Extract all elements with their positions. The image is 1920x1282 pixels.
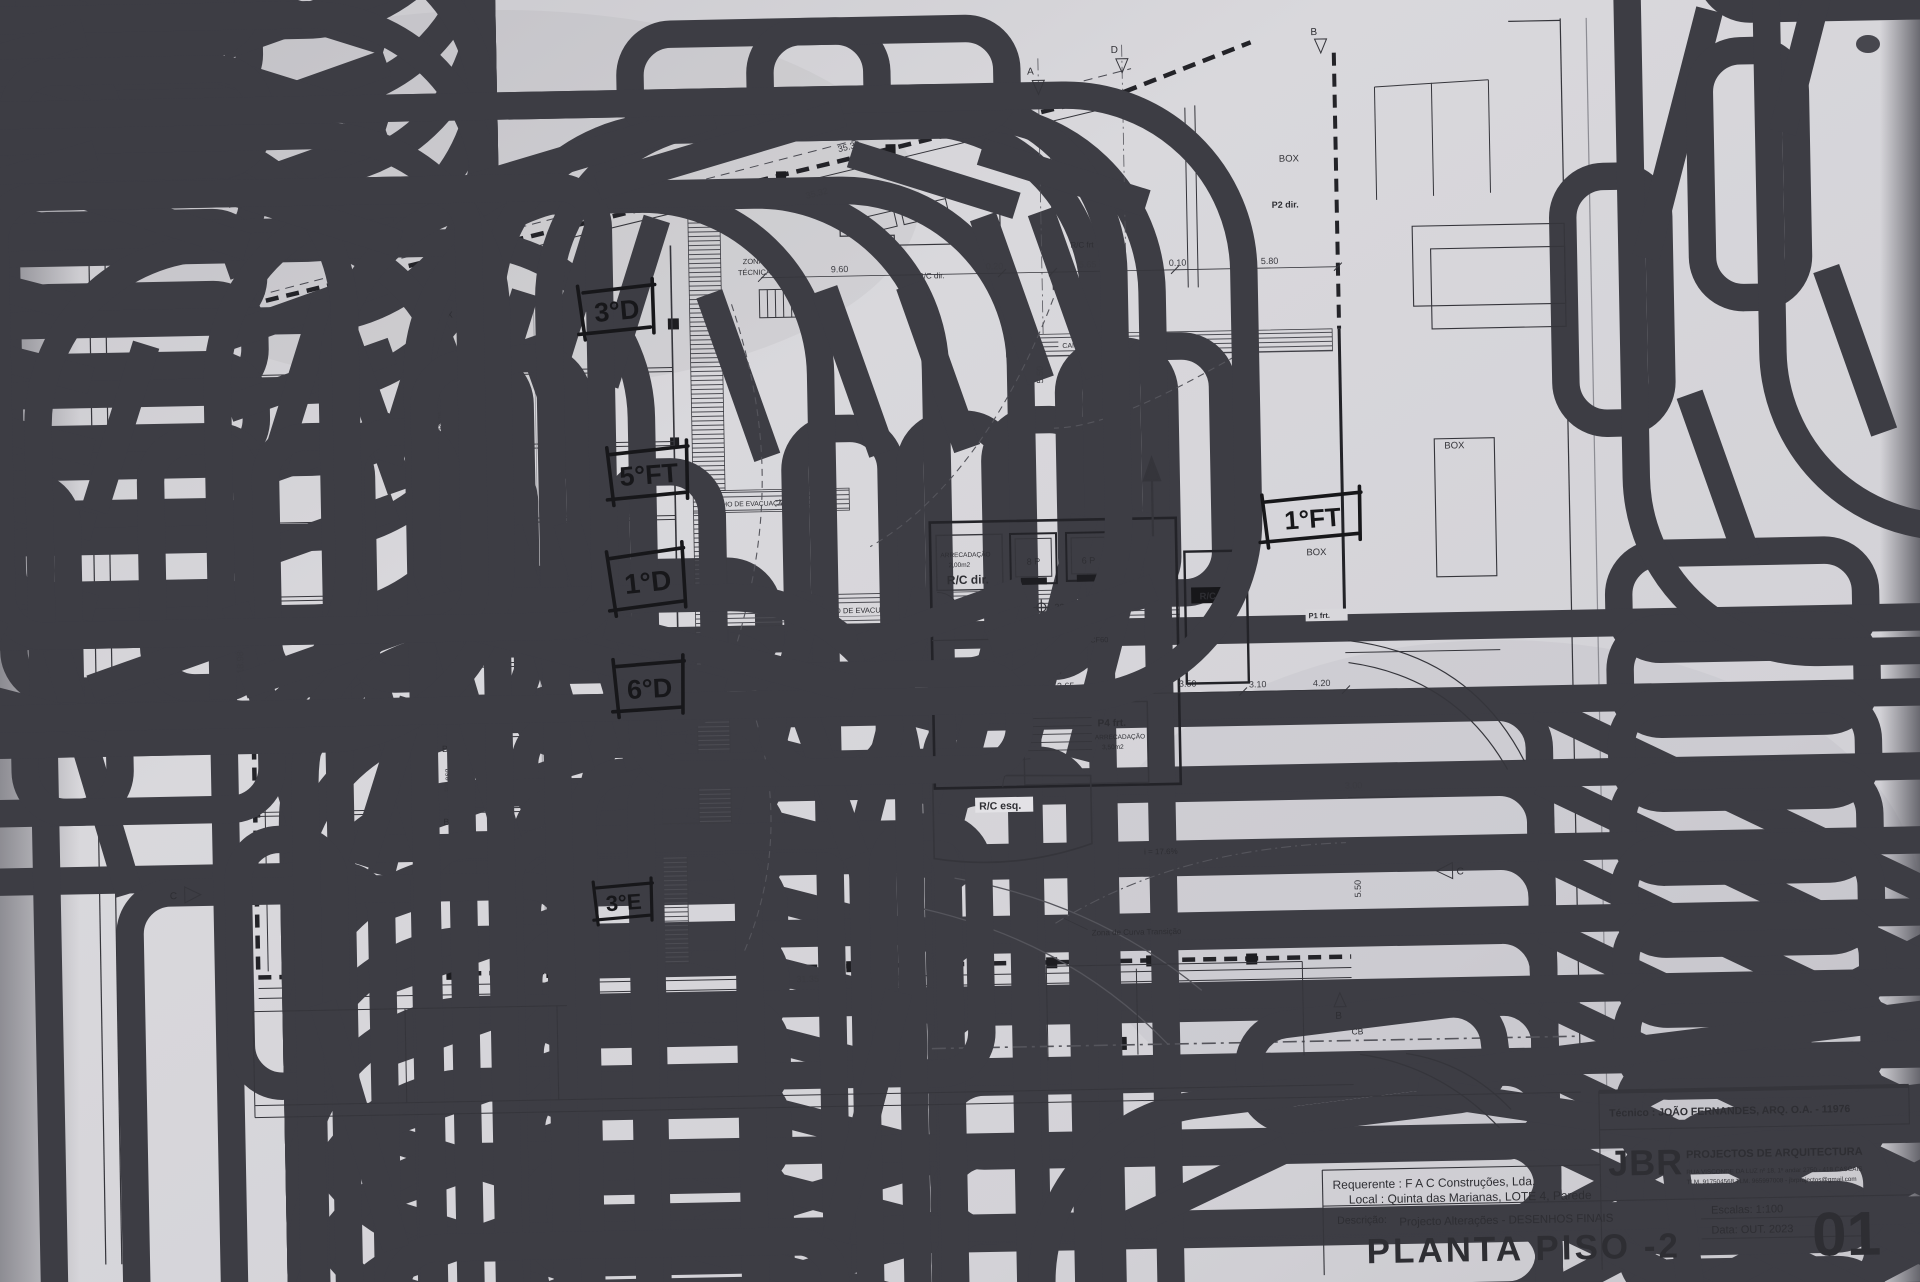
dim-9-60: 9.60 [831, 264, 849, 274]
dim-4-20: 4.20 [1313, 678, 1331, 688]
transition-curve-label: Zona de Curva Transição [1092, 927, 1183, 938]
box-label: BOX [1444, 440, 1465, 451]
dim-5-65: 5.65 [1079, 259, 1097, 269]
rc-frt-label: R/C frt [1070, 240, 1094, 249]
p1-frt-label: P1 frt. [1309, 611, 1330, 620]
storage-area-label: 3,50m2 [1102, 744, 1124, 751]
dim-31-35: 31.35 [796, 974, 819, 984]
section-marker-d: D [1111, 45, 1118, 56]
photographed-drawing-sheet: BOX P3 dir. BOX P6 frt. BOX P1 frt. BOX … [0, 0, 1920, 1282]
box-label: BOX [1279, 153, 1300, 164]
floor-plan-svg: BOX P3 dir. BOX P6 frt. BOX P1 frt. BOX … [0, 0, 1920, 1282]
dim-3-00: 3.00 [1345, 780, 1363, 790]
box-label: BOX [1306, 547, 1327, 558]
dim-3-10: 3.10 [1249, 679, 1267, 689]
sheet-number: 01 [1811, 1199, 1881, 1269]
data-row: Data: OUT. 2023 [1711, 1223, 1793, 1237]
lift-6p-label: 6 P [1082, 555, 1096, 565]
dim-5-50b: 5.50 [1353, 880, 1363, 898]
dim-18-98: 18.98 [235, 651, 245, 674]
rc-esq-label: R/C esq. [979, 800, 1021, 813]
dim-0-10: 0.10 [1169, 258, 1187, 268]
handwritten-5ft: 5°FT [618, 458, 679, 492]
section-marker-a: A [1027, 66, 1034, 77]
handwritten-3e: 3°E [605, 889, 642, 916]
rc-dir-label: R/C dir. [947, 572, 989, 587]
section-marker-b2: B [1335, 1011, 1342, 1022]
handwritten-1ft: 1°FT [1283, 502, 1342, 536]
handwritten-1d: 1°D [623, 564, 673, 600]
dim-0-20: 0.20 [986, 261, 1004, 271]
punch-hole [1856, 35, 1880, 53]
section-marker-c2: C [1456, 866, 1463, 877]
escalas-row: Escalas: 1:100 [1711, 1203, 1783, 1216]
p4-frt-label: P4 frt. [1098, 718, 1127, 730]
descricao-label: Descrição: [1337, 1214, 1387, 1227]
section-marker-cb: CB [1351, 1026, 1363, 1036]
zona-tecnica-label-2: TÉCNICA [738, 268, 771, 278]
section-marker-b: B [1310, 27, 1317, 38]
handwritten-6d: 6°D [626, 673, 673, 705]
section-marker-c: C [170, 891, 177, 902]
drawing-title: PLANTA PISO -2 [1366, 1226, 1681, 1271]
lift-8p-label: 8 P [1027, 556, 1041, 566]
storage-area-label: 2,00m2 [949, 562, 971, 569]
handwritten-3d: 3°D [593, 294, 641, 328]
slope-label: i = 17.6% [1144, 847, 1178, 857]
p2-dir-label: P2 dir. [1272, 199, 1299, 210]
dim-5-50a: 5.50 [1035, 366, 1045, 384]
logo-text: JBR [1608, 1141, 1684, 1183]
dim-5-80: 5.80 [1261, 256, 1279, 266]
